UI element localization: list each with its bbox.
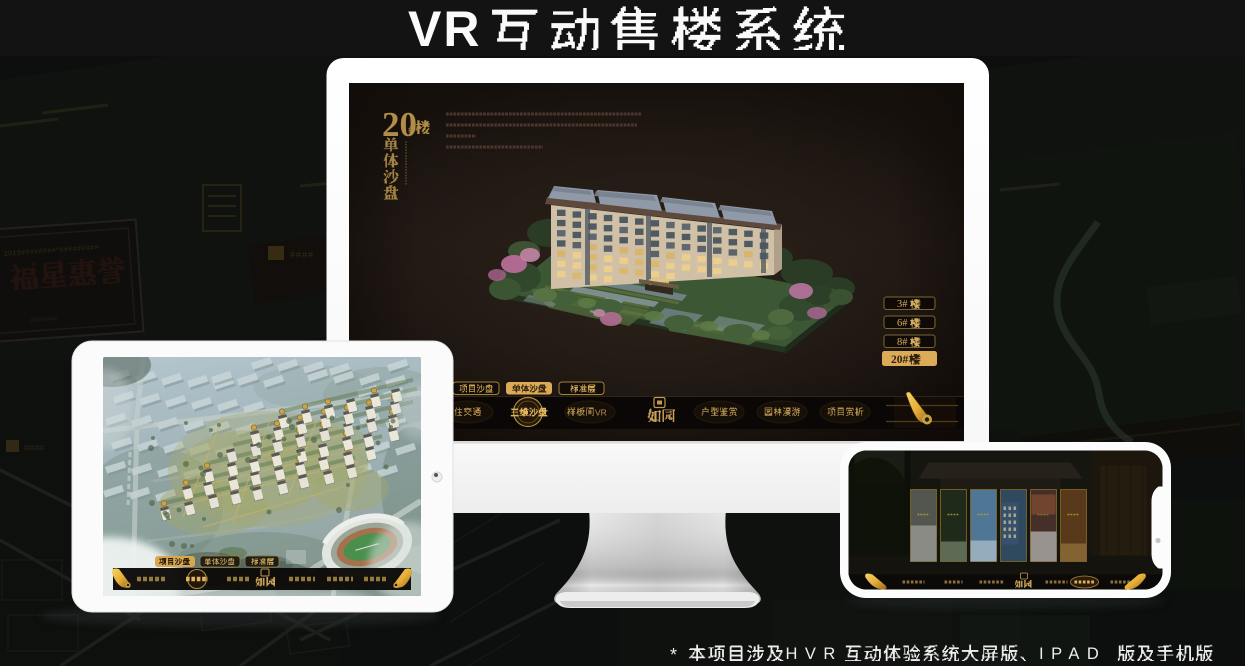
svg-text:IPAD: IPAD xyxy=(1039,645,1106,663)
svg-text:HVR: HVR xyxy=(786,645,843,663)
svg-text:20#: 20# xyxy=(891,354,909,366)
svg-text:VR: VR xyxy=(595,408,607,418)
svg-text:8#: 8# xyxy=(897,337,908,348)
svg-text:VR: VR xyxy=(408,1,481,57)
svg-text:#: # xyxy=(408,124,414,136)
svg-text:*: * xyxy=(670,645,677,665)
svg-text:####: #### xyxy=(24,443,44,453)
svg-text:3#: 3# xyxy=(897,299,908,310)
svg-text:####: #### xyxy=(290,250,314,260)
svg-text:6#: 6# xyxy=(897,318,908,329)
